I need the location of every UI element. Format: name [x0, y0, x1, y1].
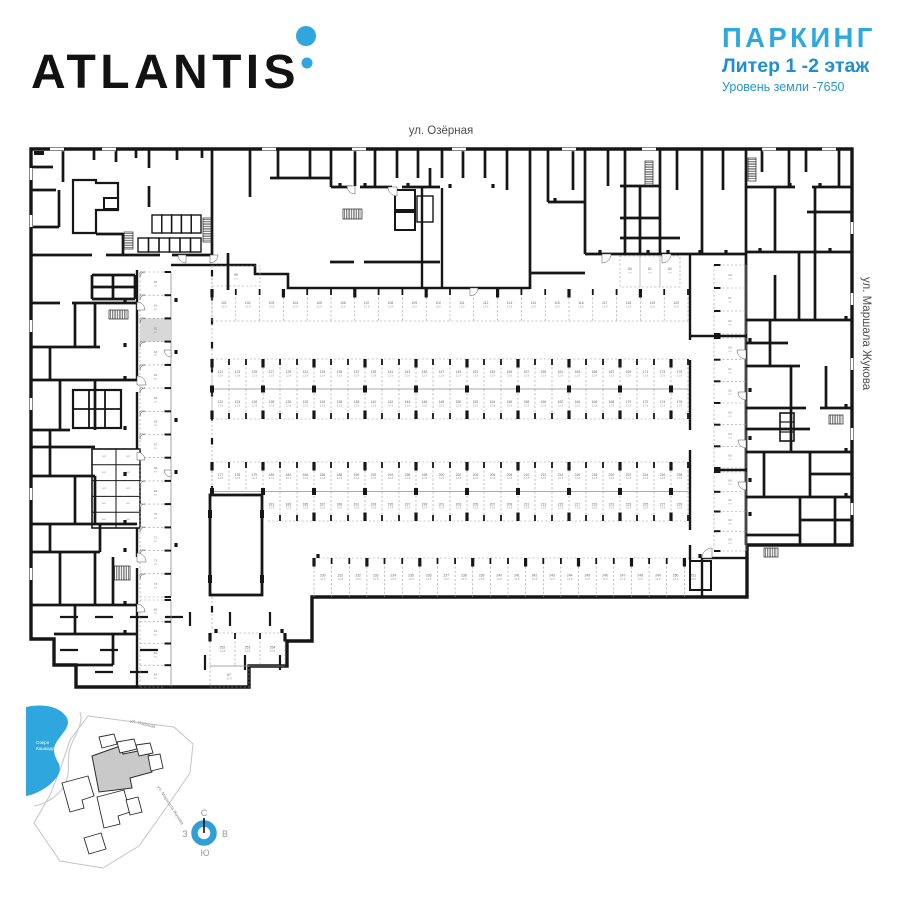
svg-text:Литер 1 -2 этаж: Литер 1 -2 этаж	[722, 55, 869, 77]
svg-text:12.8: 12.8	[444, 577, 450, 581]
svg-text:222: 222	[626, 473, 632, 477]
svg-text:кл: кл	[729, 415, 732, 418]
svg-text:208: 208	[507, 473, 513, 477]
svg-text:кл: кл	[154, 447, 157, 450]
svg-text:кл: кл	[154, 331, 157, 334]
svg-text:61: 61	[154, 629, 158, 633]
svg-text:225: 225	[643, 502, 649, 506]
svg-text:12.8: 12.8	[320, 506, 326, 510]
svg-text:145: 145	[422, 370, 428, 374]
svg-text:12.8: 12.8	[643, 373, 649, 377]
svg-text:242: 242	[532, 574, 538, 578]
svg-text:143: 143	[405, 370, 411, 374]
svg-text:12.8: 12.8	[354, 476, 360, 480]
svg-text:118: 118	[626, 301, 632, 305]
svg-text:кл: кл	[154, 308, 157, 311]
svg-text:101: 101	[221, 301, 227, 305]
svg-text:12.8: 12.8	[507, 476, 513, 480]
svg-text:155: 155	[507, 370, 513, 374]
svg-text:кл: кл	[102, 470, 105, 474]
svg-text:111: 111	[459, 301, 464, 305]
svg-text:218: 218	[592, 473, 598, 477]
svg-text:12.8: 12.8	[456, 373, 462, 377]
svg-text:163: 163	[575, 370, 581, 374]
svg-text:12.8: 12.8	[532, 577, 538, 581]
svg-text:138: 138	[354, 400, 360, 404]
svg-text:161: 161	[558, 370, 564, 374]
svg-text:кл: кл	[154, 470, 157, 473]
svg-text:12.8: 12.8	[507, 304, 513, 308]
svg-text:166: 166	[592, 400, 598, 404]
svg-text:кл: кл	[729, 542, 732, 545]
svg-text:12.8: 12.8	[354, 373, 360, 377]
svg-text:12.8: 12.8	[626, 476, 632, 480]
svg-text:12.8: 12.8	[507, 373, 513, 377]
svg-text:12.8: 12.8	[609, 403, 615, 407]
svg-text:12.8: 12.8	[252, 403, 258, 407]
svg-text:кл: кл	[154, 354, 157, 357]
svg-text:12.8: 12.8	[303, 476, 309, 480]
svg-text:214: 214	[558, 473, 564, 477]
svg-text:63: 63	[728, 538, 732, 542]
svg-text:12.8: 12.8	[269, 476, 275, 480]
svg-text:кл: кл	[235, 277, 238, 280]
svg-text:61: 61	[728, 367, 732, 371]
svg-text:12.8: 12.8	[677, 476, 683, 480]
svg-text:125: 125	[252, 370, 258, 374]
svg-text:220: 220	[609, 473, 615, 477]
svg-text:144: 144	[405, 400, 411, 404]
svg-text:200: 200	[439, 473, 445, 477]
svg-text:кл: кл	[729, 483, 732, 486]
svg-text:кл: кл	[729, 458, 732, 461]
svg-text:189: 189	[337, 502, 343, 506]
svg-text:12.8: 12.8	[602, 304, 608, 308]
svg-text:12.8: 12.8	[575, 476, 581, 480]
svg-text:12.8: 12.8	[293, 304, 299, 308]
svg-text:12.8: 12.8	[602, 577, 608, 581]
svg-text:кл: кл	[126, 486, 129, 490]
svg-text:62: 62	[154, 651, 158, 655]
svg-text:12.8: 12.8	[371, 476, 377, 480]
svg-text:135: 135	[337, 370, 343, 374]
svg-text:12.8: 12.8	[677, 373, 683, 377]
svg-text:81: 81	[648, 267, 652, 271]
svg-text:239: 239	[479, 574, 485, 578]
svg-text:65: 65	[154, 396, 158, 400]
svg-text:168: 168	[609, 400, 615, 404]
svg-text:73: 73	[154, 582, 158, 586]
svg-text:196: 196	[405, 473, 411, 477]
svg-text:227: 227	[660, 502, 666, 506]
svg-text:124: 124	[235, 400, 241, 404]
svg-text:238: 238	[461, 574, 467, 578]
svg-text:12.8: 12.8	[461, 577, 467, 581]
svg-text:184: 184	[303, 473, 309, 477]
svg-text:12.8: 12.8	[337, 506, 343, 510]
svg-text:кл: кл	[154, 612, 157, 615]
svg-text:108: 108	[388, 301, 394, 305]
svg-text:12.8: 12.8	[592, 506, 598, 510]
svg-text:117: 117	[602, 301, 608, 305]
svg-text:12.8: 12.8	[218, 373, 224, 377]
svg-text:240: 240	[496, 574, 502, 578]
svg-text:179: 179	[252, 473, 258, 477]
svg-text:60: 60	[728, 345, 732, 349]
svg-text:165: 165	[592, 370, 598, 374]
svg-text:156: 156	[507, 400, 513, 404]
svg-text:187: 187	[320, 502, 326, 506]
svg-text:141: 141	[388, 370, 394, 374]
svg-text:254: 254	[270, 646, 276, 650]
svg-text:216: 216	[575, 473, 581, 477]
svg-text:123: 123	[235, 370, 241, 374]
svg-text:12.8: 12.8	[340, 304, 346, 308]
svg-text:12.8: 12.8	[673, 577, 679, 581]
svg-text:159: 159	[541, 370, 547, 374]
svg-text:107: 107	[364, 301, 370, 305]
svg-text:12.8: 12.8	[541, 403, 547, 407]
svg-text:12.8: 12.8	[269, 373, 275, 377]
svg-text:12.8: 12.8	[422, 476, 428, 480]
svg-text:68: 68	[154, 466, 158, 470]
svg-text:60: 60	[728, 478, 732, 482]
svg-text:12.8: 12.8	[320, 476, 326, 480]
svg-text:ул. Маршала Жукова: ул. Маршала Жукова	[860, 277, 872, 391]
svg-text:12.8: 12.8	[371, 506, 377, 510]
svg-text:169: 169	[626, 370, 632, 374]
svg-text:80: 80	[628, 267, 632, 271]
svg-text:61: 61	[728, 498, 732, 502]
svg-text:12.8: 12.8	[354, 403, 360, 407]
svg-text:кл: кл	[102, 517, 105, 521]
svg-text:12.8: 12.8	[524, 403, 530, 407]
svg-text:12.8: 12.8	[531, 304, 537, 308]
svg-text:кл: кл	[729, 393, 732, 396]
svg-text:12.8: 12.8	[422, 403, 428, 407]
svg-text:12.8: 12.8	[320, 403, 326, 407]
svg-text:12.8: 12.8	[643, 506, 649, 510]
svg-text:12.8: 12.8	[235, 403, 241, 407]
svg-text:237: 237	[443, 574, 449, 578]
svg-text:113: 113	[507, 301, 513, 305]
svg-text:232: 232	[355, 574, 361, 578]
svg-text:61: 61	[154, 303, 158, 307]
svg-text:12.8: 12.8	[435, 304, 441, 308]
svg-text:12.8: 12.8	[541, 476, 547, 480]
svg-text:З: З	[182, 829, 187, 839]
svg-text:224: 224	[643, 473, 649, 477]
svg-text:245: 245	[585, 574, 591, 578]
svg-text:99: 99	[234, 273, 238, 277]
svg-text:106: 106	[340, 301, 346, 305]
svg-text:кл: кл	[126, 470, 129, 474]
svg-text:кл: кл	[729, 503, 732, 506]
svg-text:12.8: 12.8	[626, 506, 632, 510]
svg-text:12.8: 12.8	[473, 476, 479, 480]
svg-text:66: 66	[154, 419, 158, 423]
svg-text:223: 223	[626, 502, 632, 506]
svg-text:12.8: 12.8	[660, 476, 666, 480]
svg-text:219: 219	[592, 502, 598, 506]
svg-text:209: 209	[507, 502, 513, 506]
svg-text:12.8: 12.8	[638, 577, 644, 581]
svg-text:12.8: 12.8	[364, 304, 370, 308]
svg-text:217: 217	[575, 502, 581, 506]
svg-text:128: 128	[269, 400, 275, 404]
svg-text:12.8: 12.8	[554, 304, 560, 308]
svg-text:12.8: 12.8	[439, 506, 445, 510]
svg-text:12.8: 12.8	[269, 506, 275, 510]
svg-text:243: 243	[549, 574, 555, 578]
svg-text:12.8: 12.8	[371, 373, 377, 377]
svg-text:69: 69	[154, 489, 158, 493]
svg-text:12.8: 12.8	[490, 403, 496, 407]
svg-text:251: 251	[690, 574, 696, 578]
svg-text:12.8: 12.8	[660, 506, 666, 510]
svg-text:12.8: 12.8	[456, 476, 462, 480]
svg-text:12.8: 12.8	[650, 304, 656, 308]
svg-text:197: 197	[405, 502, 411, 506]
svg-text:226: 226	[660, 473, 666, 477]
svg-text:Ю: Ю	[200, 848, 209, 858]
svg-text:233: 233	[373, 574, 379, 578]
svg-text:12.8: 12.8	[252, 373, 258, 377]
svg-text:12.8: 12.8	[459, 304, 465, 308]
svg-text:ул. Озёрная: ул. Озёрная	[409, 125, 474, 137]
svg-text:12.8: 12.8	[673, 304, 679, 308]
svg-text:кл: кл	[154, 378, 157, 381]
svg-text:Уровень земли -7650: Уровень земли -7650	[722, 80, 845, 94]
svg-text:180: 180	[269, 473, 275, 477]
svg-text:12.8: 12.8	[575, 506, 581, 510]
svg-text:12.8: 12.8	[218, 403, 224, 407]
svg-text:215: 215	[558, 502, 564, 506]
svg-text:12.8: 12.8	[286, 476, 292, 480]
svg-text:12.8: 12.8	[677, 506, 683, 510]
svg-text:кл: кл	[154, 494, 157, 497]
svg-text:129: 129	[286, 370, 292, 374]
svg-text:кл: кл	[729, 372, 732, 375]
svg-text:183: 183	[286, 502, 292, 506]
svg-text:12.8: 12.8	[422, 373, 428, 377]
svg-text:173: 173	[660, 370, 666, 374]
svg-text:12.8: 12.8	[567, 577, 573, 581]
svg-text:12.8: 12.8	[226, 676, 232, 680]
svg-text:134: 134	[320, 400, 326, 404]
svg-text:181: 181	[269, 502, 275, 506]
svg-text:198: 198	[422, 473, 428, 477]
svg-text:12.8: 12.8	[643, 403, 649, 407]
svg-text:246: 246	[602, 574, 608, 578]
svg-text:12.8: 12.8	[660, 373, 666, 377]
svg-text:12.8: 12.8	[592, 403, 598, 407]
svg-text:12.8: 12.8	[490, 506, 496, 510]
svg-text:12.8: 12.8	[270, 649, 276, 653]
svg-text:12.8: 12.8	[609, 476, 615, 480]
svg-text:202: 202	[456, 473, 462, 477]
svg-text:137: 137	[354, 370, 360, 374]
svg-text:12.8: 12.8	[439, 476, 445, 480]
svg-text:151: 151	[473, 370, 479, 374]
svg-text:12.8: 12.8	[456, 403, 462, 407]
svg-text:64: 64	[728, 432, 732, 436]
svg-text:12.8: 12.8	[337, 403, 343, 407]
svg-text:114: 114	[531, 301, 537, 305]
svg-text:С: С	[201, 808, 208, 818]
svg-text:253: 253	[245, 646, 251, 650]
svg-text:12.8: 12.8	[479, 577, 485, 581]
svg-text:60: 60	[154, 607, 158, 611]
svg-text:12.8: 12.8	[355, 577, 361, 581]
svg-text:12.8: 12.8	[354, 506, 360, 510]
svg-text:12.8: 12.8	[592, 373, 598, 377]
svg-text:12.8: 12.8	[507, 403, 513, 407]
svg-text:190: 190	[354, 473, 360, 477]
svg-text:207: 207	[490, 502, 496, 506]
svg-text:12.8: 12.8	[337, 373, 343, 377]
svg-text:64: 64	[154, 373, 158, 377]
svg-text:12.8: 12.8	[609, 373, 615, 377]
svg-text:70: 70	[154, 512, 158, 516]
svg-text:12.8: 12.8	[405, 373, 411, 377]
svg-text:71: 71	[154, 536, 158, 540]
svg-text:206: 206	[490, 473, 496, 477]
svg-text:133: 133	[320, 370, 326, 374]
svg-text:249: 249	[655, 574, 661, 578]
svg-text:12.8: 12.8	[235, 476, 241, 480]
svg-text:кл: кл	[102, 486, 105, 490]
svg-text:61: 61	[728, 296, 732, 300]
svg-text:63: 63	[154, 350, 158, 354]
svg-text:кл: кл	[729, 278, 732, 281]
svg-text:кл: кл	[102, 501, 105, 505]
svg-text:201: 201	[439, 502, 445, 506]
svg-text:кл: кл	[669, 271, 672, 274]
svg-text:148: 148	[439, 400, 445, 404]
svg-text:122: 122	[218, 400, 224, 404]
svg-text:12.8: 12.8	[303, 506, 309, 510]
svg-text:121: 121	[218, 370, 224, 374]
svg-text:12.8: 12.8	[541, 506, 547, 510]
svg-text:185: 185	[303, 502, 309, 506]
svg-text:кл: кл	[126, 517, 129, 521]
svg-text:12.8: 12.8	[412, 304, 418, 308]
svg-text:109: 109	[411, 301, 417, 305]
svg-text:12.8: 12.8	[338, 577, 344, 581]
svg-text:12.8: 12.8	[320, 577, 326, 581]
svg-text:176: 176	[677, 400, 683, 404]
svg-text:12.8: 12.8	[303, 373, 309, 377]
svg-text:186: 186	[320, 473, 326, 477]
svg-text:кл: кл	[629, 271, 632, 274]
svg-text:12.8: 12.8	[578, 304, 584, 308]
svg-text:кл: кл	[154, 586, 157, 589]
svg-text:кл: кл	[729, 522, 732, 525]
svg-text:170: 170	[626, 400, 632, 404]
svg-text:157: 157	[524, 370, 530, 374]
svg-text:230: 230	[320, 574, 326, 578]
svg-text:12.8: 12.8	[524, 476, 530, 480]
svg-text:кл: кл	[126, 454, 129, 458]
svg-text:12.8: 12.8	[507, 506, 513, 510]
svg-text:12.8: 12.8	[269, 304, 275, 308]
svg-text:12.8: 12.8	[388, 476, 394, 480]
svg-text:12.8: 12.8	[388, 373, 394, 377]
svg-text:12.8: 12.8	[221, 304, 227, 308]
svg-text:213: 213	[541, 502, 547, 506]
svg-text:12.8: 12.8	[660, 403, 666, 407]
svg-text:12.8: 12.8	[245, 304, 251, 308]
svg-text:116: 116	[578, 301, 584, 305]
svg-text:131: 131	[303, 370, 309, 374]
svg-text:191: 191	[354, 502, 360, 506]
svg-text:12.8: 12.8	[320, 373, 326, 377]
svg-text:12.8: 12.8	[269, 403, 275, 407]
svg-text:12.8: 12.8	[691, 577, 697, 581]
svg-text:12.8: 12.8	[235, 373, 241, 377]
svg-text:212: 212	[541, 473, 547, 477]
svg-text:60: 60	[154, 280, 158, 284]
svg-text:228: 228	[677, 473, 683, 477]
svg-text:12.8: 12.8	[286, 373, 292, 377]
svg-text:205: 205	[473, 502, 479, 506]
svg-text:112: 112	[483, 301, 489, 305]
svg-text:12.8: 12.8	[286, 506, 292, 510]
svg-text:ATLANTIS: ATLANTIS	[31, 46, 300, 99]
svg-text:кл: кл	[154, 401, 157, 404]
svg-text:кл: кл	[729, 301, 732, 304]
svg-text:12.8: 12.8	[558, 403, 564, 407]
svg-text:193: 193	[371, 502, 377, 506]
svg-text:104: 104	[292, 301, 298, 305]
svg-text:119: 119	[650, 301, 656, 305]
svg-text:62: 62	[728, 319, 732, 323]
svg-text:12.8: 12.8	[426, 577, 432, 581]
svg-text:Кашкадан: Кашкадан	[36, 746, 58, 751]
svg-text:188: 188	[337, 473, 343, 477]
svg-text:194: 194	[388, 473, 394, 477]
svg-text:12.8: 12.8	[405, 506, 411, 510]
svg-text:кл: кл	[154, 540, 157, 543]
svg-text:252: 252	[220, 646, 226, 650]
svg-text:кл: кл	[154, 634, 157, 637]
svg-text:12.8: 12.8	[373, 577, 379, 581]
svg-text:149: 149	[456, 370, 462, 374]
svg-text:120: 120	[673, 301, 679, 305]
svg-text:В: В	[222, 829, 228, 839]
svg-text:152: 152	[473, 400, 479, 404]
svg-text:203: 203	[456, 502, 462, 506]
svg-text:210: 210	[524, 473, 530, 477]
svg-text:12.8: 12.8	[549, 577, 555, 581]
svg-text:12.8: 12.8	[391, 577, 397, 581]
svg-text:12.8: 12.8	[316, 304, 322, 308]
svg-text:12.8: 12.8	[620, 577, 626, 581]
svg-text:126: 126	[252, 400, 258, 404]
svg-text:153: 153	[490, 370, 496, 374]
svg-text:250: 250	[673, 574, 679, 578]
svg-text:150: 150	[456, 400, 462, 404]
svg-text:130: 130	[286, 400, 292, 404]
svg-text:12.8: 12.8	[405, 476, 411, 480]
svg-text:177: 177	[218, 473, 224, 477]
svg-text:178: 178	[235, 473, 241, 477]
svg-text:12.8: 12.8	[286, 403, 292, 407]
svg-text:192: 192	[371, 473, 377, 477]
svg-text:ПАРКИНГ: ПАРКИНГ	[722, 22, 876, 53]
svg-text:12.8: 12.8	[490, 373, 496, 377]
